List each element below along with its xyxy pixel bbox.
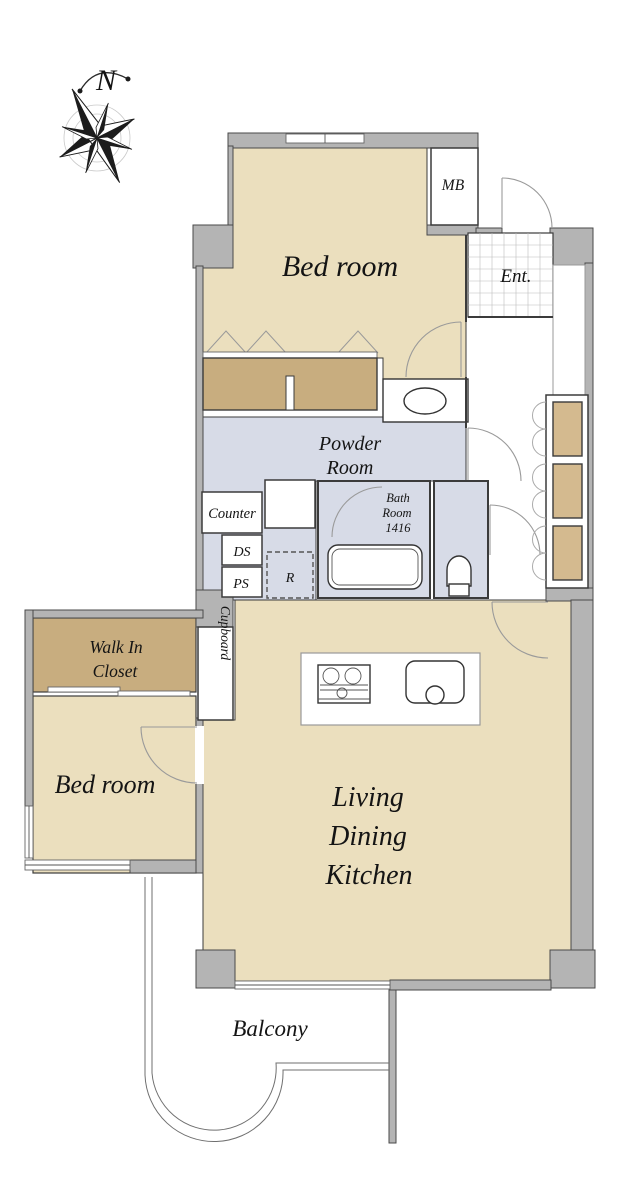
storage-shelf-2 [553, 464, 582, 518]
bath-room-label-2: Room [381, 506, 411, 520]
wall-bedroom2-bottom [130, 860, 203, 873]
wall-ldk-left-pillar [196, 950, 235, 988]
wall-bottom-right-block [550, 950, 595, 988]
wall-wic-left [25, 610, 33, 806]
powder-room-label-1: Powder [318, 433, 381, 455]
bath-room-label-1: Bath [386, 491, 410, 505]
counter-label: Counter [208, 506, 256, 522]
front-door [502, 178, 552, 228]
floor-plan-page: N Bed room MB Ent. Powder Room Counter B… [0, 0, 620, 1200]
ps-label: PS [232, 577, 249, 592]
wall-balcony-divider [389, 990, 396, 1143]
bath-room-label-3: 1416 [386, 521, 412, 535]
powder-room-label-2: Room [326, 457, 374, 479]
right-niche [553, 265, 585, 395]
sink-icon [406, 661, 464, 704]
closet-divider [286, 376, 294, 410]
powder-room-door [468, 428, 521, 481]
basin-icon [404, 388, 446, 414]
stove-icon [318, 665, 370, 703]
floor-plan-drawing: N Bed room MB Ent. Powder Room Counter B… [0, 0, 620, 1200]
walk-in-closet-label-1: Walk In [89, 637, 143, 657]
wall-bedroom2-right-bottom [196, 783, 203, 873]
wall-left-mid [196, 266, 203, 600]
hall-storage [533, 395, 589, 588]
mb-label: MB [441, 177, 465, 194]
toilet-room [434, 481, 488, 598]
ds-label: DS [232, 545, 250, 560]
entrance-label: Ent. [499, 266, 531, 287]
storage-shelf-1 [553, 402, 582, 456]
balcony-label: Balcony [232, 1016, 308, 1041]
closet-door-line [203, 352, 377, 358]
storage-shelf-3 [553, 526, 582, 580]
kitchen-island [301, 653, 480, 725]
wall-under-storage [546, 588, 593, 601]
refrigerator-label: R [285, 571, 295, 586]
storage-folding-doors [533, 402, 547, 580]
bedroom-top-label: Bed room [282, 250, 398, 283]
compass-north-icon: N [35, 64, 158, 202]
wall-bedroom-left-upper [228, 146, 233, 226]
ldk-label-1: Living [331, 782, 404, 813]
toilet-door [490, 505, 540, 555]
upper-cabinet-box [265, 480, 315, 528]
cupboard-label: Cupboard [218, 606, 233, 661]
compass-n-label: N [95, 64, 118, 97]
wall-top-right-block [550, 228, 593, 265]
ldk-label-2: Dining [328, 821, 407, 852]
toilet-icon [447, 556, 471, 596]
bathtub-icon [328, 545, 422, 589]
wall-wic-top [25, 610, 203, 618]
wall-ldk-bottom [390, 980, 551, 990]
ldk-label-3: Kitchen [324, 860, 412, 891]
walk-in-closet-label-2: Closet [93, 661, 139, 681]
wash-basin [383, 379, 468, 422]
bedroom-left-label: Bed room [55, 770, 156, 799]
wall-right-ldk [571, 600, 593, 950]
wall-step-block [193, 225, 233, 268]
bath-room [318, 481, 430, 598]
